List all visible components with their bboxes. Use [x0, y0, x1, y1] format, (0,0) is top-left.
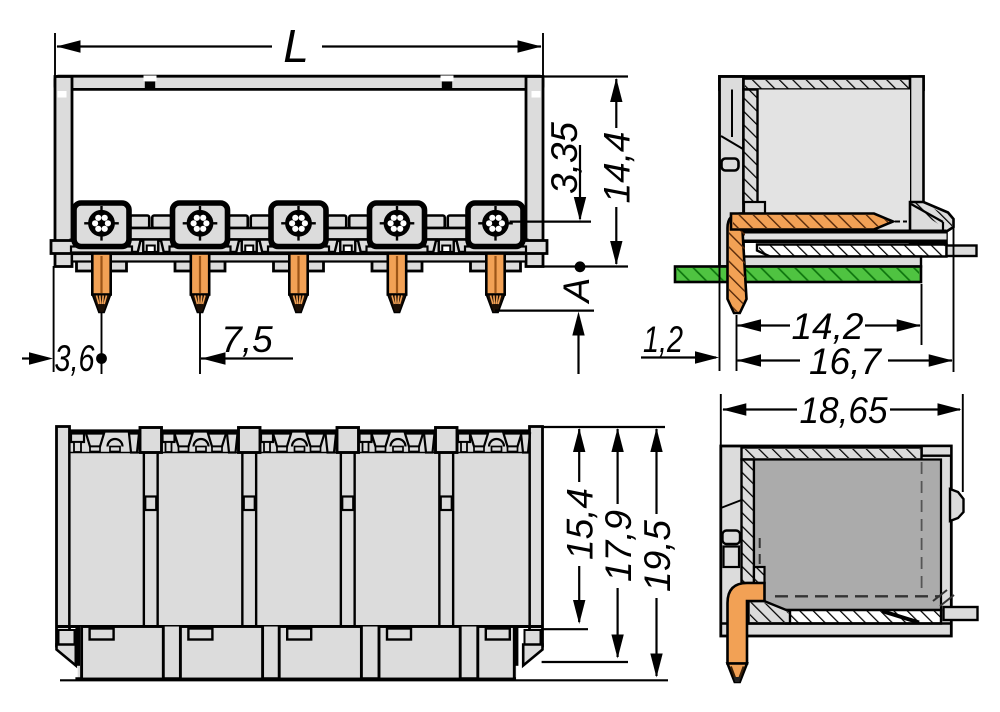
svg-text:7,5: 7,5	[221, 319, 273, 360]
svg-text:16,7: 16,7	[809, 341, 882, 382]
svg-text:19,5: 19,5	[637, 520, 678, 592]
svg-text:3,6: 3,6	[55, 338, 95, 379]
svg-text:L: L	[283, 20, 309, 72]
svg-text:14,4: 14,4	[597, 131, 638, 203]
svg-text:1,2: 1,2	[643, 319, 683, 360]
svg-text:A: A	[556, 278, 597, 305]
svg-text:17,9: 17,9	[598, 510, 639, 582]
svg-text:18,65: 18,65	[800, 390, 888, 431]
svg-text:3,35: 3,35	[544, 122, 585, 194]
svg-text:15,4: 15,4	[560, 488, 601, 560]
